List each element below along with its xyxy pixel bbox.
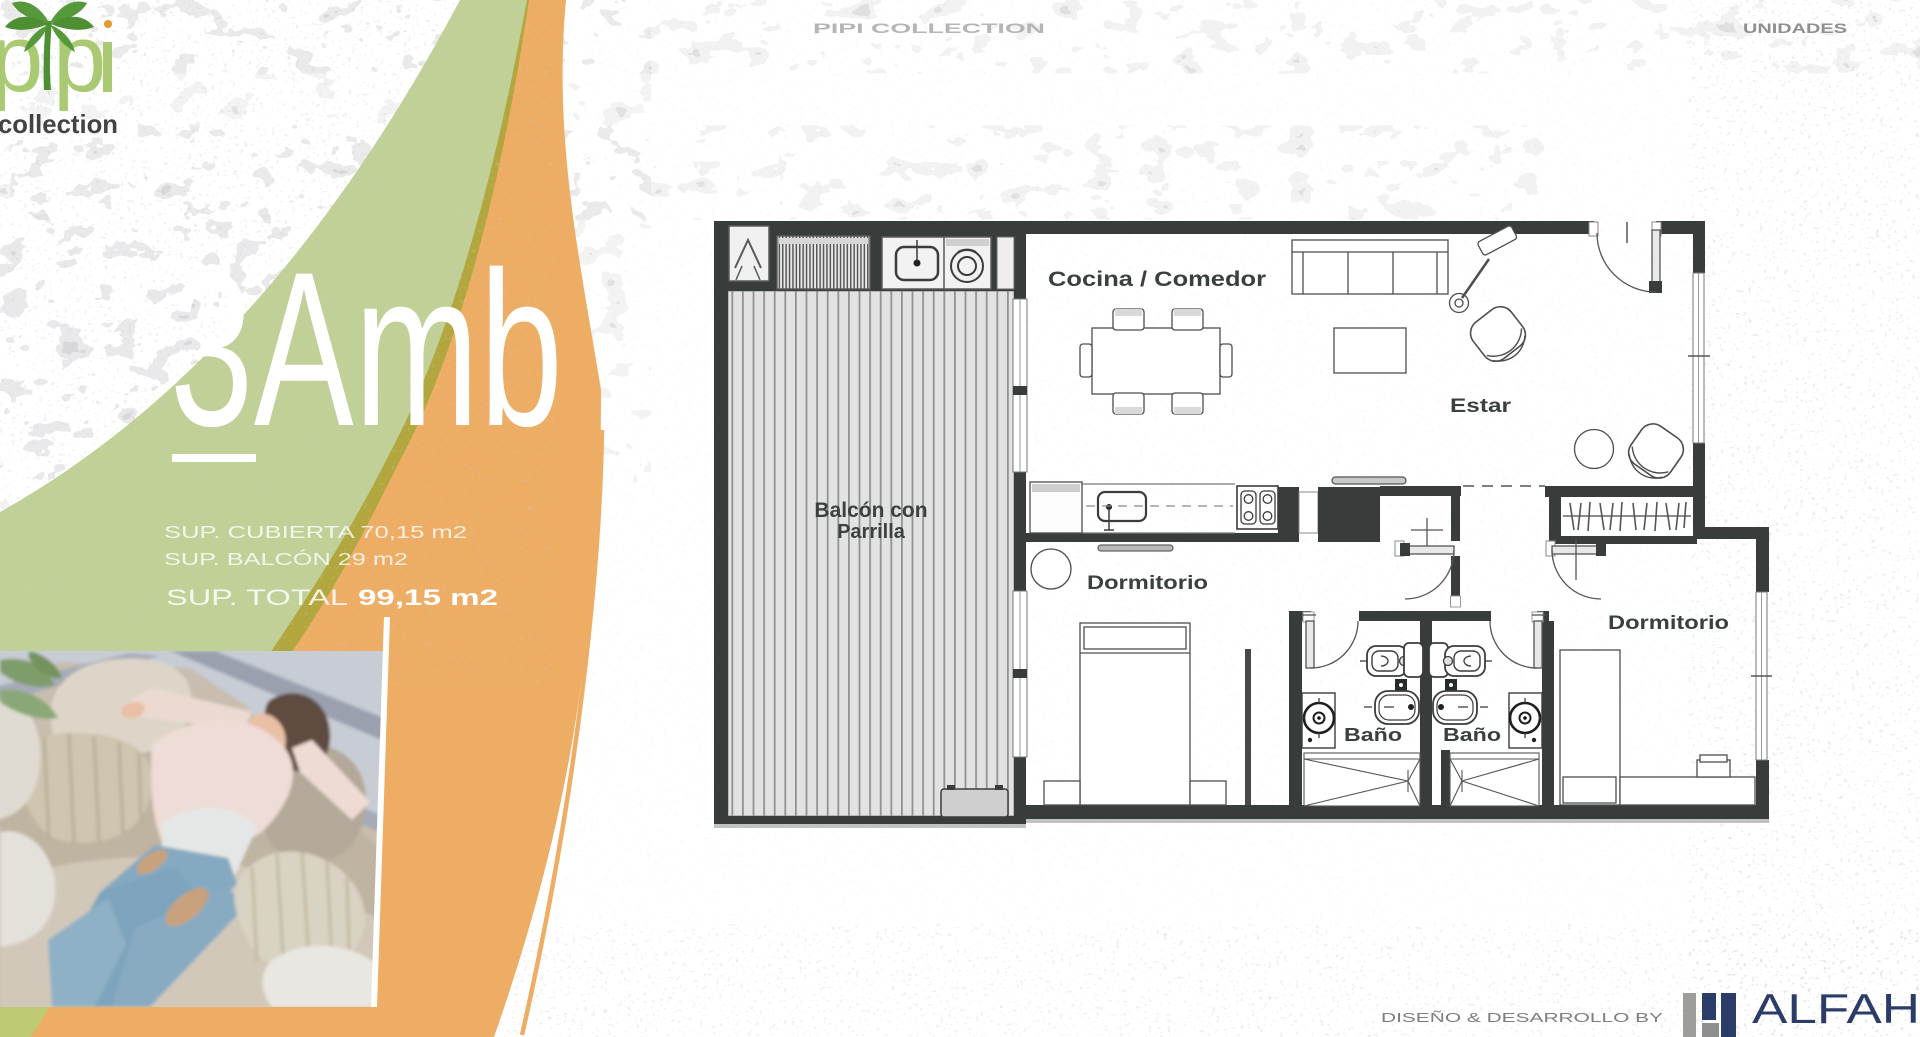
svg-text:SUP. TOTAL: SUP. TOTAL <box>166 585 348 610</box>
svg-text:Parrilla: Parrilla <box>837 521 906 543</box>
svg-text:DISEÑO & DESARROLLO BY: DISEÑO & DESARROLLO BY <box>1381 1011 1664 1025</box>
svg-text:SUP. CUBIERTA 70,15 m2: SUP. CUBIERTA 70,15 m2 <box>164 522 467 542</box>
svg-text:PIPI COLLECTION: PIPI COLLECTION <box>813 21 1045 36</box>
svg-text:Estar: Estar <box>1450 396 1512 417</box>
svg-text:Baño: Baño <box>1344 725 1402 745</box>
svg-text:3Amb: 3Amb <box>170 226 564 472</box>
svg-text:collection: collection <box>0 109 118 139</box>
svg-text:ALFAH: ALFAH <box>1752 985 1920 1032</box>
svg-text:SUP. BALCÓN 29 m2: SUP. BALCÓN 29 m2 <box>164 548 408 569</box>
svg-text:Dormitorio: Dormitorio <box>1087 573 1208 594</box>
svg-text:Baño: Baño <box>1443 725 1501 745</box>
svg-text:Balcón con: Balcón con <box>814 499 927 522</box>
svg-text:UNIDADES: UNIDADES <box>1743 21 1847 36</box>
svg-text:Cocina / Comedor: Cocina / Comedor <box>1048 268 1266 291</box>
svg-text:Dormitorio: Dormitorio <box>1608 613 1729 634</box>
svg-text:99,15 m2: 99,15 m2 <box>358 585 498 610</box>
